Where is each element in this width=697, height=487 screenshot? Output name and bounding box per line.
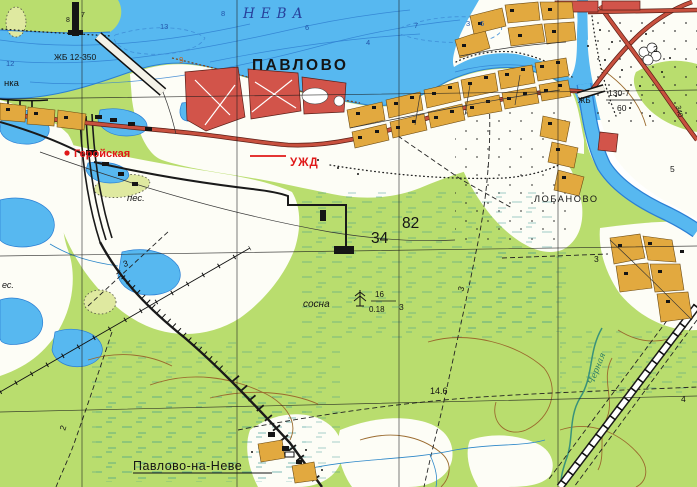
map-label-depth-4: 4 (366, 38, 370, 47)
map-label-lobanovo: ЛОБАНОВО (534, 194, 599, 204)
map-label-sosna-step: 3 (399, 302, 404, 312)
map-label-depth-13: 13 (160, 22, 168, 31)
map-label-pavlovo: ПАВЛОВО (252, 57, 348, 74)
map-label-sosna-diam: 0.18 (369, 305, 385, 314)
map-label-kv-34: 34 (371, 230, 389, 247)
map-label-depth-7: 7 (414, 21, 418, 30)
stadium (302, 88, 328, 104)
map-label-num-2-field: 2 (653, 44, 658, 54)
map-label-bridge-60: 60 (617, 103, 627, 113)
spur-terminal-building (334, 246, 354, 254)
map-label-elev-14-6: 14.6 (430, 386, 448, 396)
map-label-num-4: 4 (681, 394, 686, 404)
map-label-uzhd: УЖД (290, 157, 319, 169)
station-symbol-pnn (285, 452, 294, 457)
grove-patch (6, 7, 26, 37)
map-canvas: НЕВАПАВЛОВОЖБ 12-350нкаГеройскаяУЖДпес.е… (0, 0, 697, 487)
topographic-map-pavlovo: НЕВАПАВЛОВОЖБ 12-350нкаГеройскаяУЖДпес.е… (0, 0, 697, 487)
map-label-depth-12: 12 (6, 59, 14, 68)
map-label-sosna: сосна (303, 299, 330, 310)
map-label-sosna-height: 16 (375, 290, 384, 299)
map-label-neva: НЕВА (242, 6, 309, 22)
map-label-zhb-2: ЖБ (578, 96, 591, 105)
map-label-geroyskaya: Геройская (74, 148, 130, 160)
map-label-bridge-130-7: 130-7 (608, 88, 630, 98)
map-label-shore-8: 8 (66, 17, 70, 24)
map-label-nka: нка (4, 78, 20, 89)
map-label-depth-6a: 6 (305, 23, 309, 32)
map-label-depth-3: 3 (466, 19, 470, 28)
map-label-shore-7: 7 (81, 12, 85, 19)
map-label-num-5: 5 (670, 164, 675, 174)
map-label-pes: пес. (127, 193, 145, 204)
map-label-shore-9: 9 (179, 56, 184, 65)
geroyskaya-station-dot (64, 150, 69, 155)
map-label-zhb-12-350: ЖБ 12-350 (54, 52, 97, 62)
map-label-depth-6b: 6 (480, 19, 484, 28)
map-label-pavlovo-na-neve: Павлово-на-Неве (133, 459, 242, 473)
map-label-es: ес. (2, 280, 14, 290)
map-label-kv-82: 82 (402, 215, 419, 232)
map-label-depth-8: 8 (221, 9, 225, 18)
map-label-trail-3c: 3 (594, 254, 599, 264)
